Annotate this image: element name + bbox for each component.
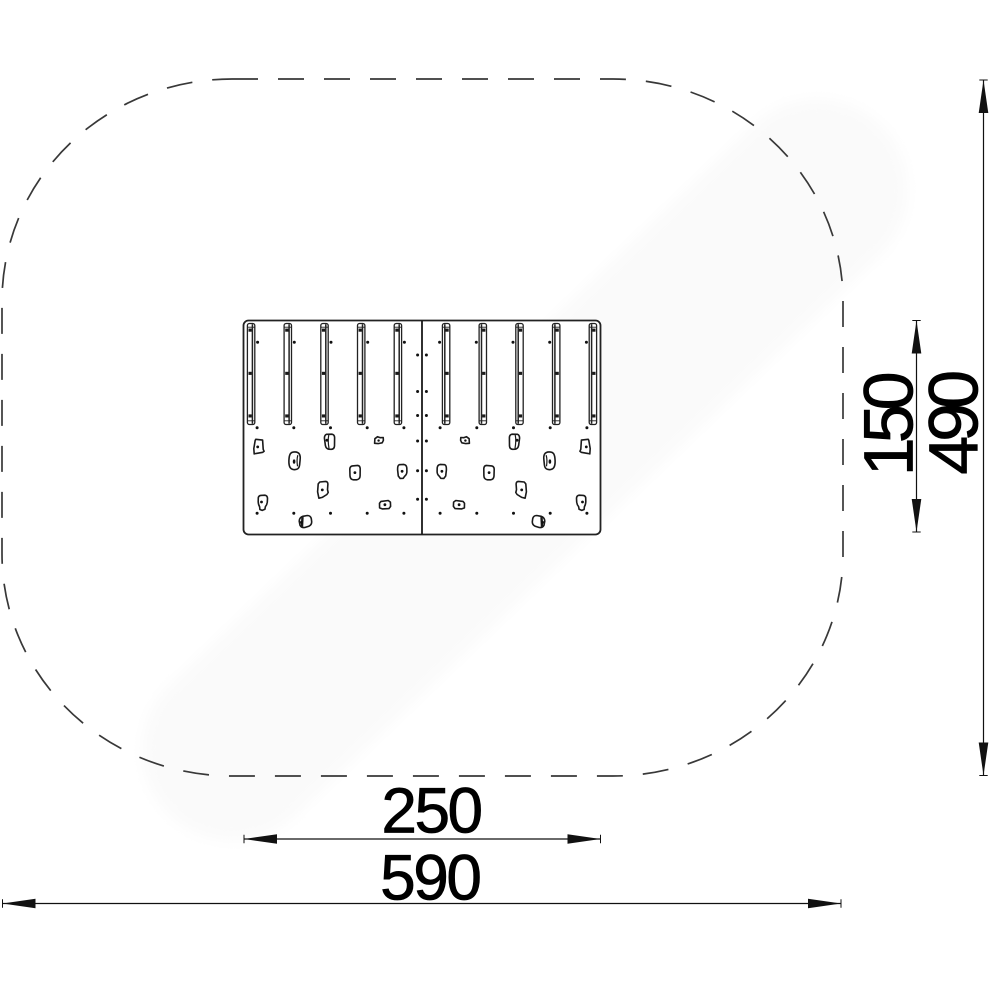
svg-text:250: 250: [381, 775, 481, 847]
svg-text:590: 590: [380, 841, 480, 913]
svg-text:490: 490: [915, 372, 993, 475]
